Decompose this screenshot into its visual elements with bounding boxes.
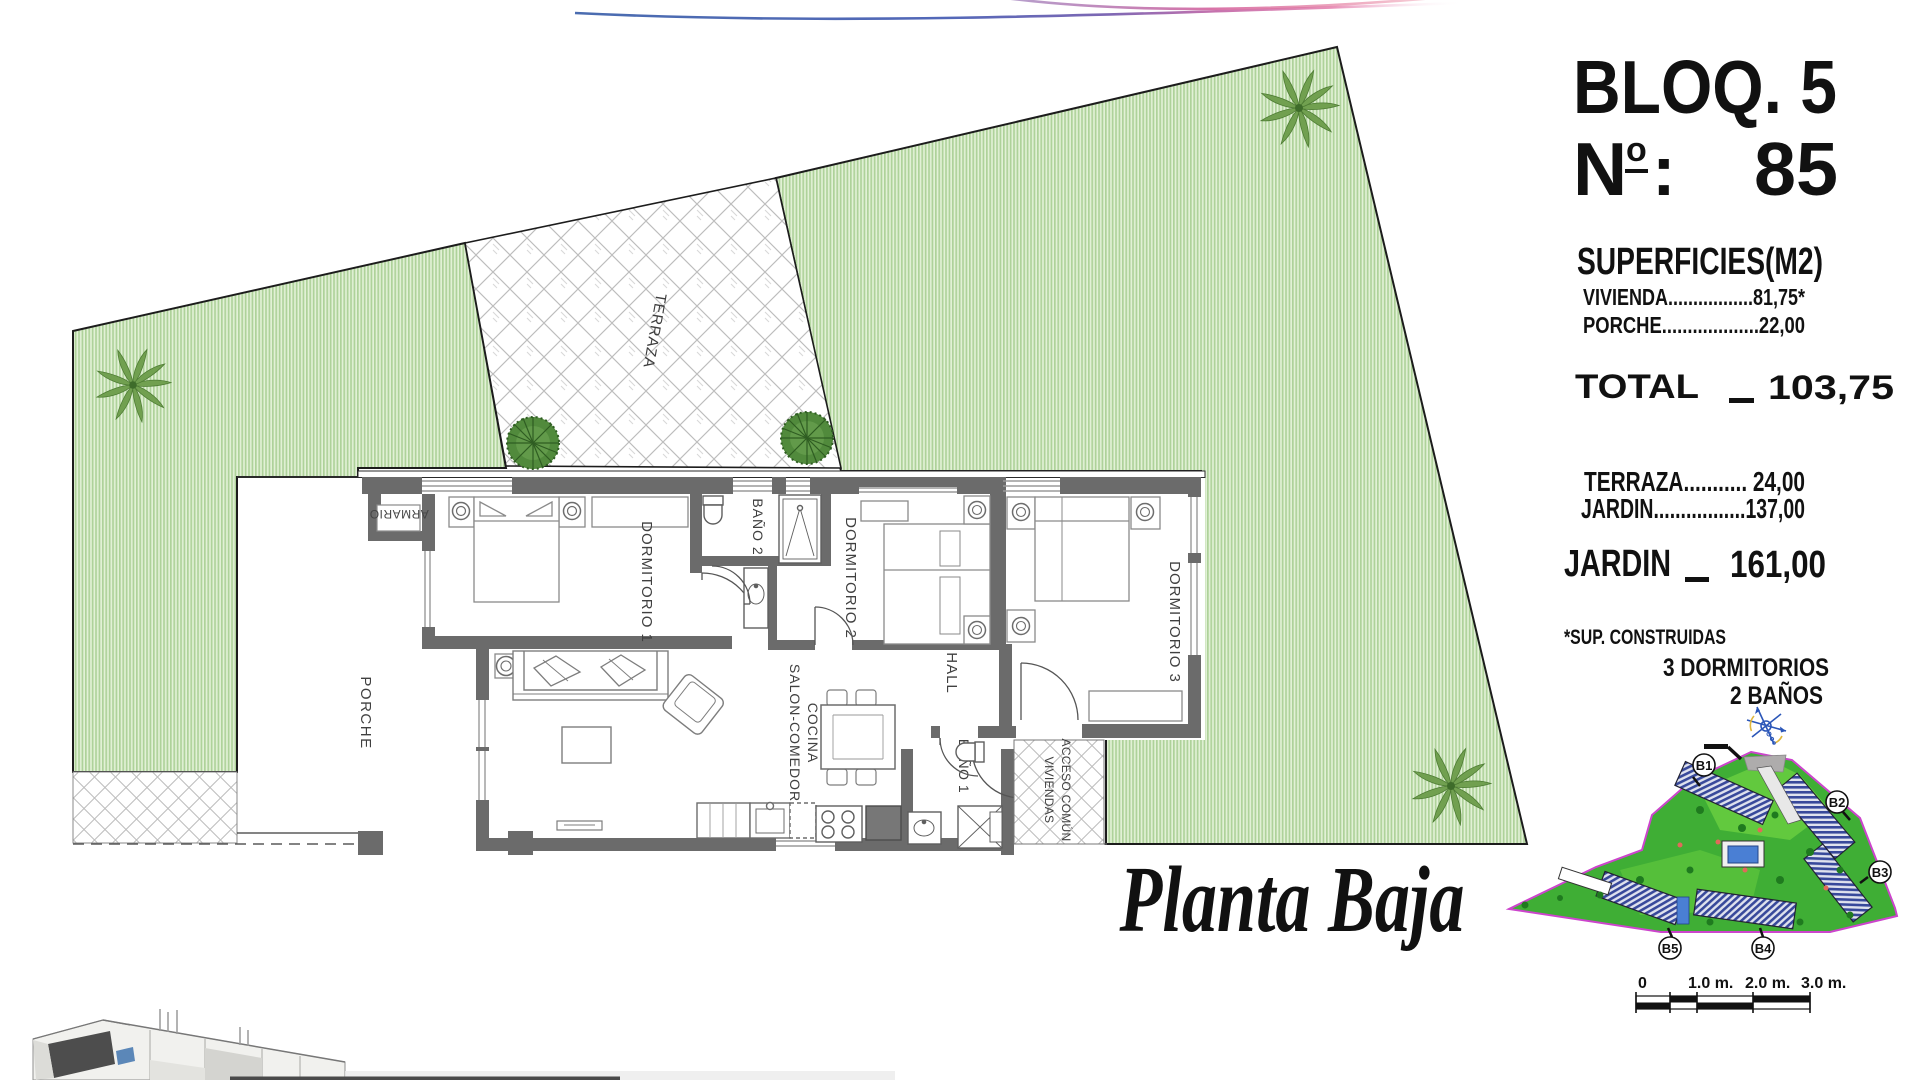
svg-text:PORCHE...................22,00: PORCHE...................22,00 <box>1583 312 1805 338</box>
svg-text:ACCESO COMÚN: ACCESO COMÚN <box>1059 739 1074 842</box>
svg-text:2.0 m.: 2.0 m. <box>1745 975 1790 992</box>
svg-text:2 BAÑOS: 2 BAÑOS <box>1730 680 1823 710</box>
svg-text:N: N <box>1573 127 1627 211</box>
svg-text:B5: B5 <box>1662 941 1679 956</box>
svg-text:TOTAL: TOTAL <box>1575 368 1699 406</box>
svg-text:o: o <box>1626 131 1647 169</box>
svg-text:BLOQ. 5: BLOQ. 5 <box>1573 45 1837 129</box>
svg-text:85: 85 <box>1754 127 1838 211</box>
svg-text:0: 0 <box>1638 975 1647 992</box>
svg-text:B4: B4 <box>1755 941 1772 956</box>
svg-text:103,75: 103,75 <box>1768 369 1894 407</box>
svg-text:3 DORMITORIOS: 3 DORMITORIOS <box>1663 654 1829 682</box>
svg-text:DORMITORIO 1: DORMITORIO 1 <box>638 521 655 643</box>
svg-text:VIVIENDAS: VIVIENDAS <box>1042 757 1056 824</box>
svg-text:ARMARIO: ARMARIO <box>369 507 429 521</box>
svg-text:SUPERFICIES(M2): SUPERFICIES(M2) <box>1577 241 1823 283</box>
svg-text:PORCHE: PORCHE <box>357 676 374 749</box>
svg-text:HALL: HALL <box>943 652 960 694</box>
svg-text:B3: B3 <box>1872 865 1889 880</box>
svg-text:JARDIN: JARDIN <box>1564 543 1671 585</box>
svg-text:VIVIENDA.................81,75: VIVIENDA.................81,75* <box>1583 284 1805 310</box>
svg-text:1.0 m.: 1.0 m. <box>1688 975 1733 992</box>
svg-text:JARDIN.................137,00: JARDIN.................137,00 <box>1581 493 1805 524</box>
svg-text:DORMITORIO 3: DORMITORIO 3 <box>1166 561 1183 683</box>
svg-text:Planta Baja: Planta Baja <box>1119 848 1465 952</box>
svg-text:BAÑO 2: BAÑO 2 <box>750 498 766 555</box>
svg-text:B2: B2 <box>1829 795 1846 810</box>
svg-text:161,00: 161,00 <box>1730 544 1826 586</box>
svg-text:3.0 m.: 3.0 m. <box>1801 975 1846 992</box>
svg-text::: : <box>1652 132 1676 211</box>
svg-text:SALON-COMEDOR: SALON-COMEDOR <box>787 664 803 802</box>
svg-text:COCINA: COCINA <box>805 703 821 763</box>
svg-text:*SUP. CONSTRUIDAS: *SUP. CONSTRUIDAS <box>1564 626 1726 649</box>
svg-text:B1: B1 <box>1696 758 1713 773</box>
